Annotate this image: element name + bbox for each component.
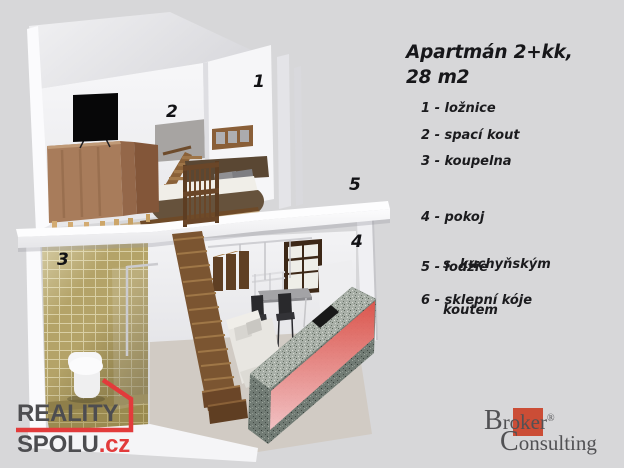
bed-niche — [155, 119, 206, 162]
render-number-1: 1 — [253, 72, 265, 92]
hanging-wood-slat — [213, 257, 223, 291]
trademark-symbol: ® — [547, 413, 555, 424]
wall-shelf — [212, 125, 253, 150]
broker-consulting-logo: Broker® Consulting — [482, 404, 624, 462]
legend-item-6: 6 - sklepní kóje — [421, 293, 532, 309]
render-number-4: 4 — [350, 232, 363, 252]
apartment-title: Apartmán 2+kk,28 m2 — [406, 40, 573, 90]
wall-fin-1 — [277, 54, 291, 209]
legend-item-1: 1 - ložnice — [421, 101, 496, 117]
reality-logo-tld: .cz — [99, 431, 130, 458]
hanging-wood-slat — [239, 251, 249, 289]
listing-image: 1 2 3 4 5 Apartmán 2+kk,28 m2 1 - ložnic… — [0, 0, 624, 468]
reality-logo-word1: REALITY — [17, 400, 118, 428]
tv — [73, 93, 118, 148]
legend-item-3: 3 - koupelna — [421, 154, 511, 170]
wall-fin-2 — [294, 66, 303, 206]
render-number-5: 5 — [349, 175, 361, 195]
legend-item-2: 2 - spací kout — [421, 128, 520, 144]
render-number-3: 3 — [57, 250, 69, 270]
legend-item-5: 5 - lodžie — [421, 260, 488, 276]
render-number-2: 2 — [166, 102, 178, 122]
hanging-wood-slat — [226, 254, 236, 290]
reality-logo-word2: SPOLU.cz — [17, 431, 130, 459]
chair — [278, 293, 292, 315]
